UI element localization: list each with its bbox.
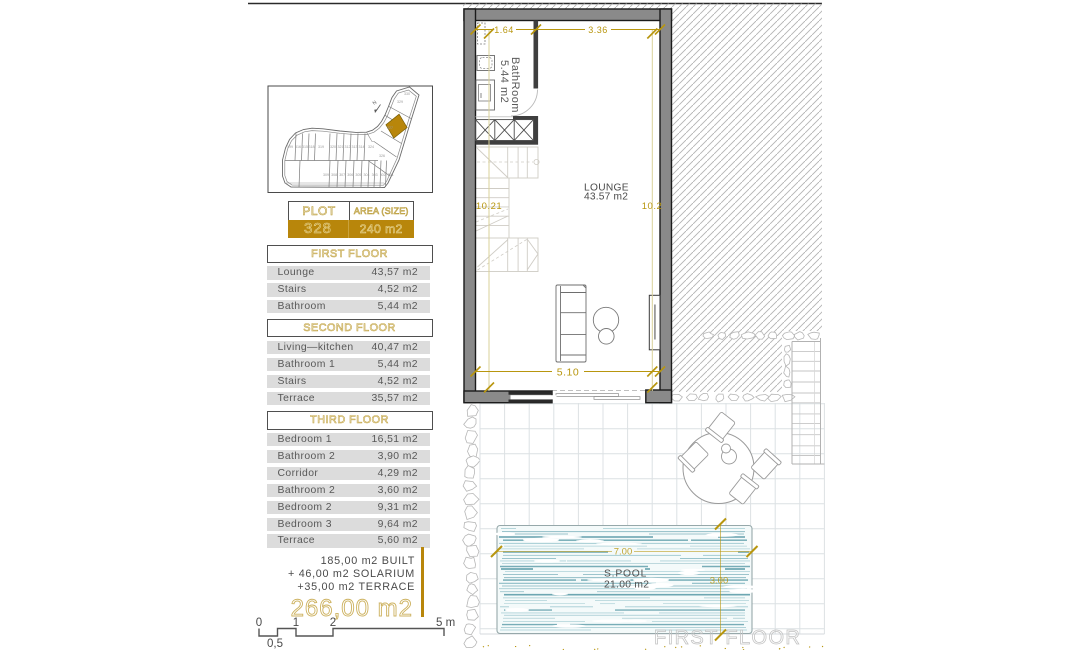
svg-text:312: 312 [345,145,351,149]
svg-text:S.POOL: S.POOL [604,569,647,580]
svg-text:10.2: 10.2 [642,201,663,212]
svg-text:306: 306 [347,173,353,177]
svg-text:199: 199 [287,145,293,149]
svg-text:43.57 m2: 43.57 m2 [584,192,628,203]
svg-text:319: 319 [318,145,324,149]
svg-text:21.00 m2: 21.00 m2 [604,580,649,591]
svg-text:324: 324 [368,145,374,149]
svg-text:313: 313 [352,145,358,149]
svg-text:7.00: 7.00 [614,547,633,558]
svg-text:330: 330 [404,92,410,96]
svg-text:308: 308 [331,173,337,177]
svg-text:301: 301 [388,173,394,177]
svg-text:307: 307 [339,173,345,177]
svg-text:302: 302 [380,173,386,177]
svg-text:304: 304 [364,173,370,177]
svg-text:314: 314 [359,145,365,149]
svg-text:309: 309 [323,173,329,177]
svg-text:327: 327 [387,126,393,130]
svg-text:1.64: 1.64 [494,25,514,35]
svg-text:5.10: 5.10 [557,367,579,379]
svg-text:326: 326 [379,154,385,158]
svg-text:303: 303 [372,173,378,177]
svg-text:320: 320 [330,145,336,149]
svg-text:329: 329 [397,100,403,104]
svg-text:318: 318 [309,145,315,149]
svg-text:316: 316 [295,145,301,149]
svg-text:321: 321 [338,145,344,149]
svg-text:10.21: 10.21 [476,201,502,212]
svg-text:FIRST FLOOR: FIRST FLOOR [654,627,801,649]
svg-text:3.36: 3.36 [588,25,608,35]
svg-text:5.44 m2: 5.44 m2 [498,60,510,103]
svg-text:315: 315 [302,145,308,149]
svg-text:305: 305 [355,173,361,177]
svg-text:3.00: 3.00 [710,576,729,587]
